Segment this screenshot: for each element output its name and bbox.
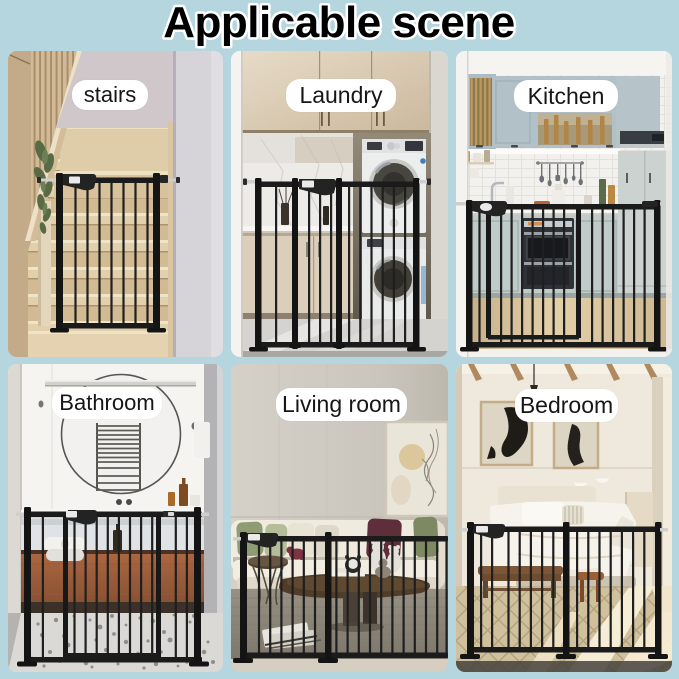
svg-text:Applicable scene: Applicable scene bbox=[163, 0, 514, 47]
